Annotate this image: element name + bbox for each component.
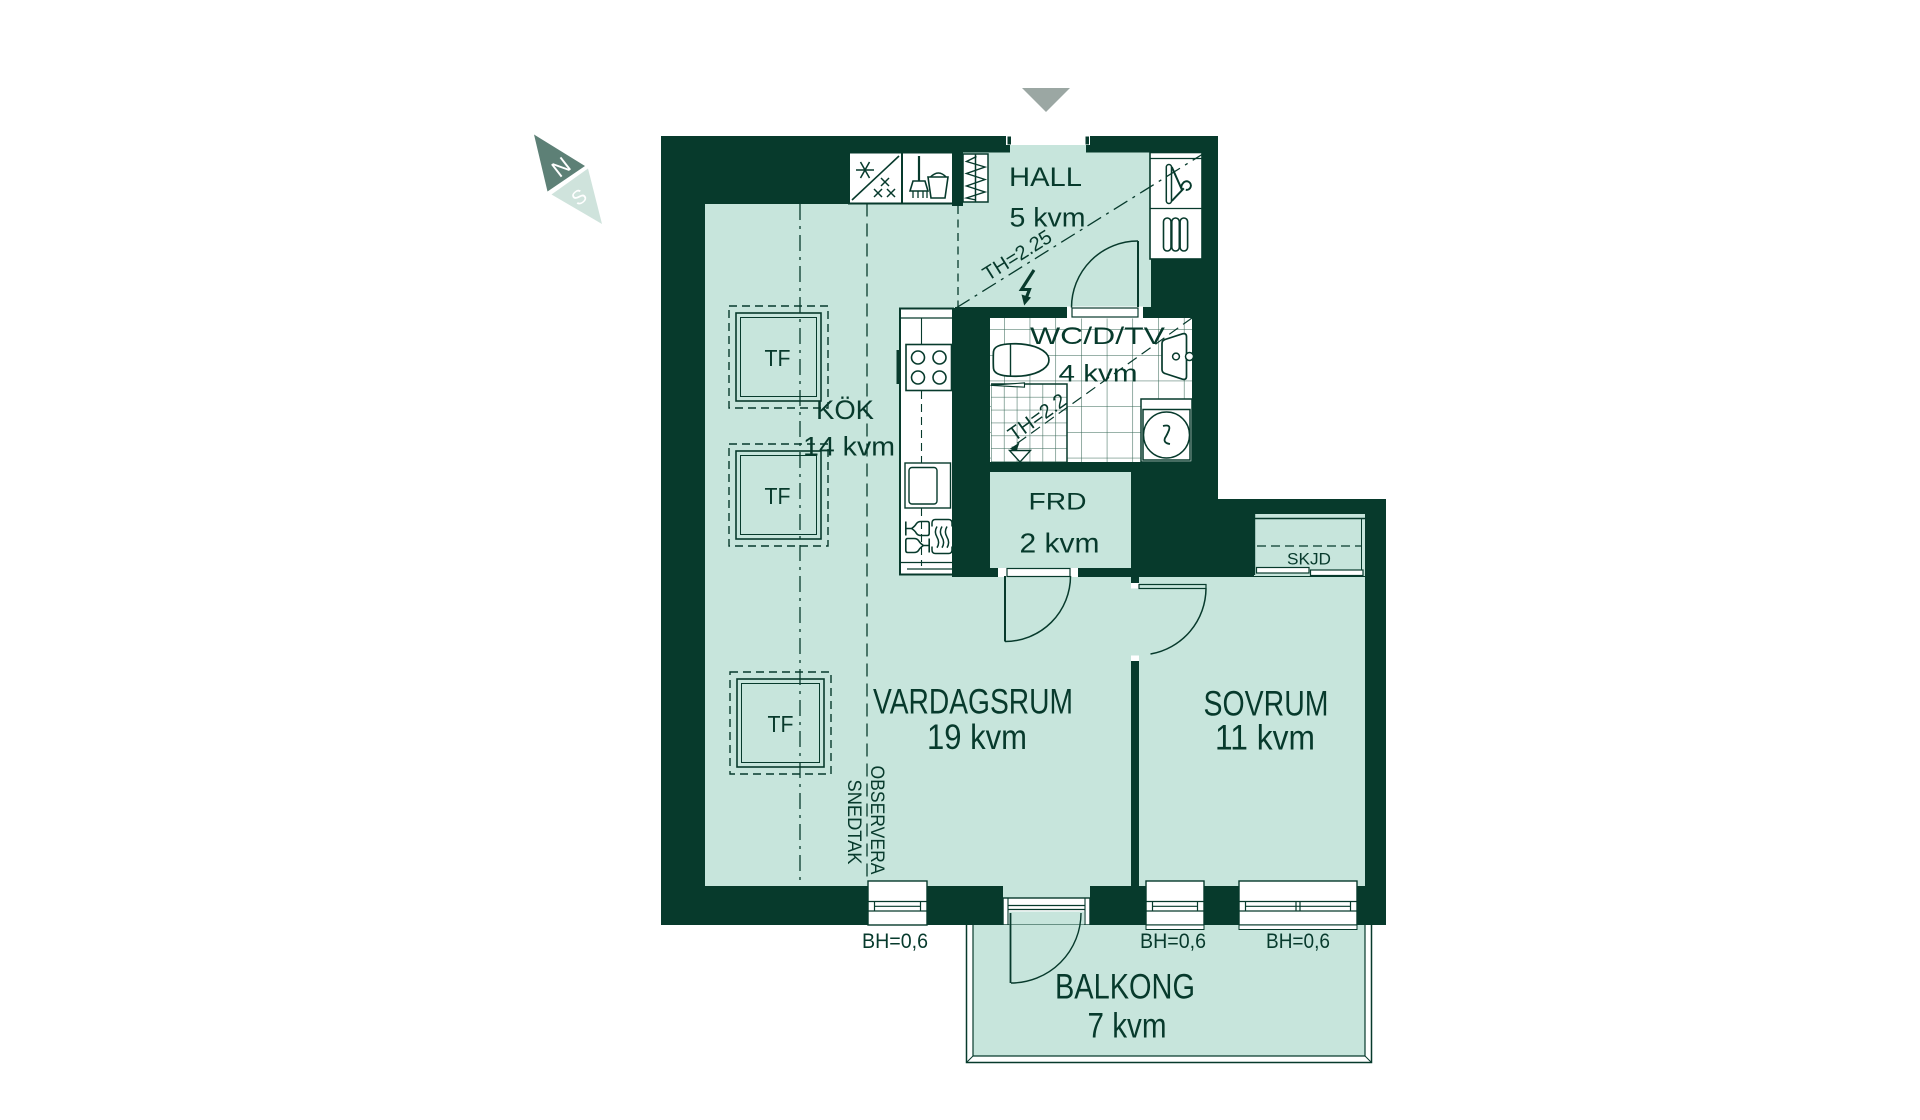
svg-text:FRD: FRD	[1029, 489, 1087, 516]
svg-text:BALKONG: BALKONG	[1055, 968, 1195, 1007]
svg-text:WC/D/TV: WC/D/TV	[1030, 323, 1165, 350]
svg-text:HALL: HALL	[1009, 162, 1082, 192]
svg-text:11 kvm: 11 kvm	[1215, 719, 1315, 758]
svg-text:TF: TF	[765, 483, 791, 509]
svg-text:VARDAGSRUM: VARDAGSRUM	[873, 683, 1073, 722]
svg-text:19 kvm: 19 kvm	[927, 718, 1027, 757]
svg-text:7 kvm: 7 kvm	[1088, 1007, 1167, 1046]
svg-text:TF: TF	[765, 345, 791, 371]
svg-text:2 kvm: 2 kvm	[1020, 528, 1100, 559]
svg-text:SKJD: SKJD	[1287, 550, 1331, 569]
svg-text:4 kvm: 4 kvm	[1059, 361, 1138, 388]
svg-text:KÖK: KÖK	[816, 395, 874, 425]
svg-text:14 kvm: 14 kvm	[803, 432, 895, 462]
svg-text:BH=0,6: BH=0,6	[862, 930, 928, 953]
svg-text:BH=0,6: BH=0,6	[1140, 930, 1206, 953]
svg-text:5 kvm: 5 kvm	[1010, 203, 1086, 233]
svg-text:OBSERVERA: OBSERVERA	[866, 766, 887, 875]
svg-text:BH=0,6: BH=0,6	[1266, 930, 1330, 953]
svg-text:SNEDTAK: SNEDTAK	[843, 780, 864, 865]
svg-text:TF: TF	[768, 711, 794, 737]
